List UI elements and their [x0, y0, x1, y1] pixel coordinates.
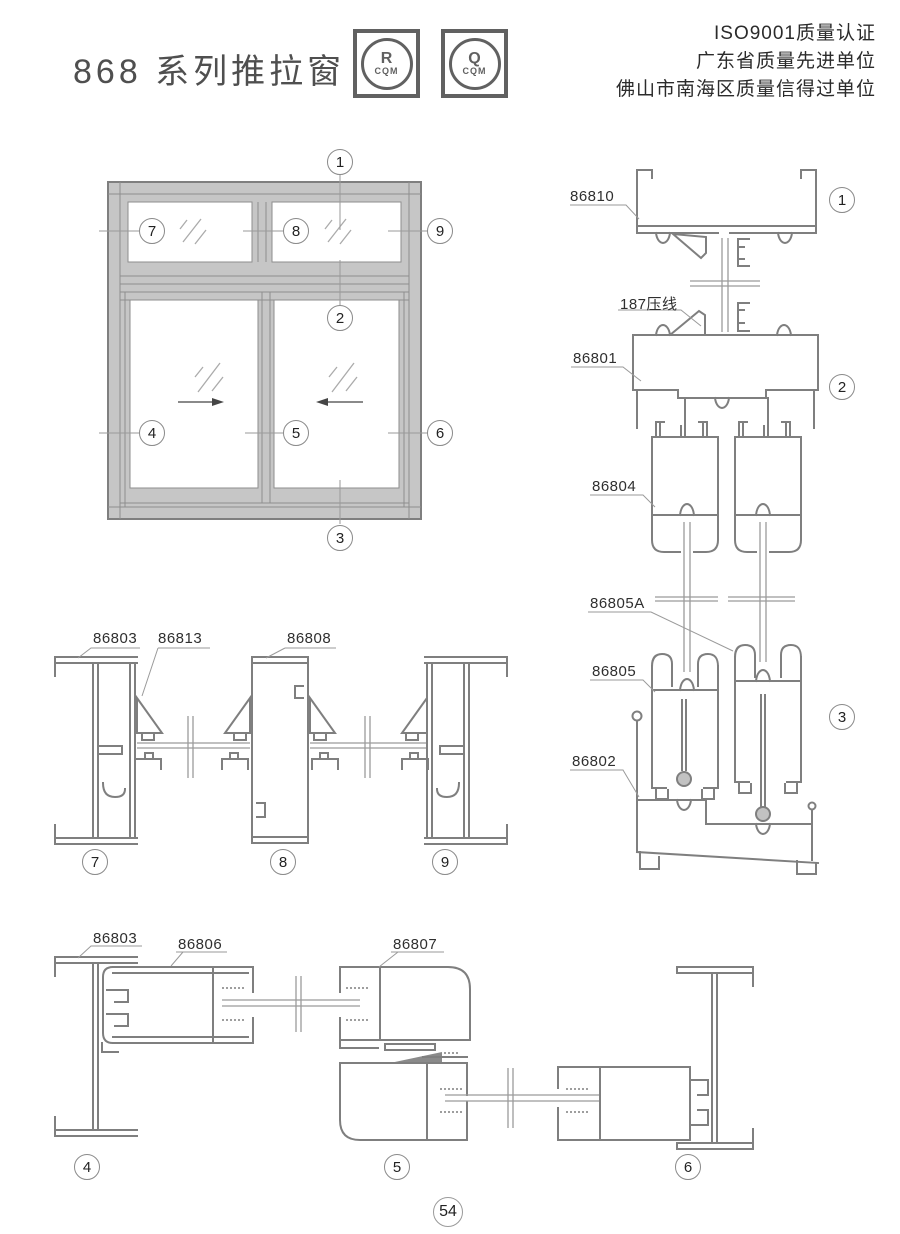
- section-callout-8: 8: [270, 849, 296, 875]
- page-number-text: 54: [439, 1203, 457, 1221]
- section-callout-4: 4: [74, 1154, 100, 1180]
- section-callout-3: 3: [829, 704, 855, 730]
- section-callout-6: 6: [675, 1154, 701, 1180]
- part-label-86803-mid: 86803: [93, 630, 137, 647]
- part-label-187-bead: 187压线: [620, 293, 678, 314]
- middle-glass-right: [310, 716, 428, 778]
- part-label-86807: 86807: [393, 936, 437, 953]
- callout-number: 9: [441, 854, 449, 871]
- callout-1: 1: [327, 149, 353, 175]
- part-label-86808: 86808: [287, 630, 331, 647]
- part-label-86805: 86805: [592, 663, 636, 680]
- section-callout-1: 1: [829, 187, 855, 213]
- callout-number: 8: [279, 854, 287, 871]
- callout-5: 5: [283, 420, 309, 446]
- section-transom-86801: [633, 325, 818, 436]
- catalog-page: 868 系列推拉窗 R CQM Q CQM ISO9001质量认证 广东省质量先…: [0, 0, 900, 1234]
- glazing-bead-187: [670, 303, 749, 335]
- bottom-glass-right: [445, 1068, 600, 1128]
- section-callout-2: 2: [829, 374, 855, 400]
- callout-4: 4: [139, 420, 165, 446]
- part-label-86801: 86801: [573, 350, 617, 367]
- part-label-86805a: 86805A: [590, 595, 645, 612]
- callout-number: 6: [684, 1159, 692, 1176]
- callout-number: 9: [436, 223, 444, 240]
- callout-number: 3: [336, 530, 344, 547]
- callout-number: 1: [336, 154, 344, 171]
- section-mullion-86808: [225, 657, 335, 843]
- callout-9: 9: [427, 218, 453, 244]
- part-label-86813: 86813: [158, 630, 202, 647]
- section-sash-top-86804: [652, 422, 801, 552]
- part-label-86802: 86802: [572, 753, 616, 770]
- glazing-bead-86813: [137, 698, 162, 740]
- callout-2: 2: [327, 305, 353, 331]
- part-label-86804: 86804: [592, 478, 636, 495]
- technical-drawing: [0, 0, 900, 1234]
- callout-6: 6: [427, 420, 453, 446]
- section-jamb-86803-bottom: [55, 957, 137, 1136]
- callout-number: 5: [292, 425, 300, 442]
- section-sash-stile-86806: [102, 967, 253, 1052]
- section-sash-bottom-86805a: [735, 645, 801, 821]
- section-jamb-86803-right: [402, 657, 507, 844]
- part-label-86810: 86810: [570, 188, 614, 205]
- part-label-86803-bottom: 86803: [93, 930, 137, 947]
- callout-number: 8: [292, 223, 300, 240]
- part-label-86806: 86806: [178, 936, 222, 953]
- section-callout-9: 9: [432, 849, 458, 875]
- callout-3: 3: [327, 525, 353, 551]
- callout-number: 4: [83, 1159, 91, 1176]
- section-jamb-right-bottom: [677, 967, 753, 1149]
- callout-number: 2: [336, 310, 344, 327]
- callout-number: 2: [838, 379, 846, 396]
- callout-number: 7: [91, 854, 99, 871]
- page-number: 54: [433, 1197, 463, 1227]
- callout-8: 8: [283, 218, 309, 244]
- callout-number: 1: [838, 192, 846, 209]
- section-jamb-86803-left: [55, 657, 137, 844]
- section-callout-5: 5: [384, 1154, 410, 1180]
- callout-number: 6: [436, 425, 444, 442]
- section-head-86810: [637, 170, 816, 266]
- callout-number: 3: [838, 709, 846, 726]
- middle-glass-left: [135, 716, 250, 778]
- section-sash-stile-right: [558, 1067, 708, 1140]
- section-callout-7: 7: [82, 849, 108, 875]
- section-interlock-86807: [340, 967, 470, 1140]
- fixed-glass-section: [690, 238, 760, 332]
- section-sash-bottom-86805: [652, 654, 718, 799]
- sash-glass-sections: [655, 522, 795, 672]
- callout-number: 7: [148, 223, 156, 240]
- callout-7: 7: [139, 218, 165, 244]
- middle-row-leaders: [78, 648, 336, 696]
- callout-number: 5: [393, 1159, 401, 1176]
- callout-number: 4: [148, 425, 156, 442]
